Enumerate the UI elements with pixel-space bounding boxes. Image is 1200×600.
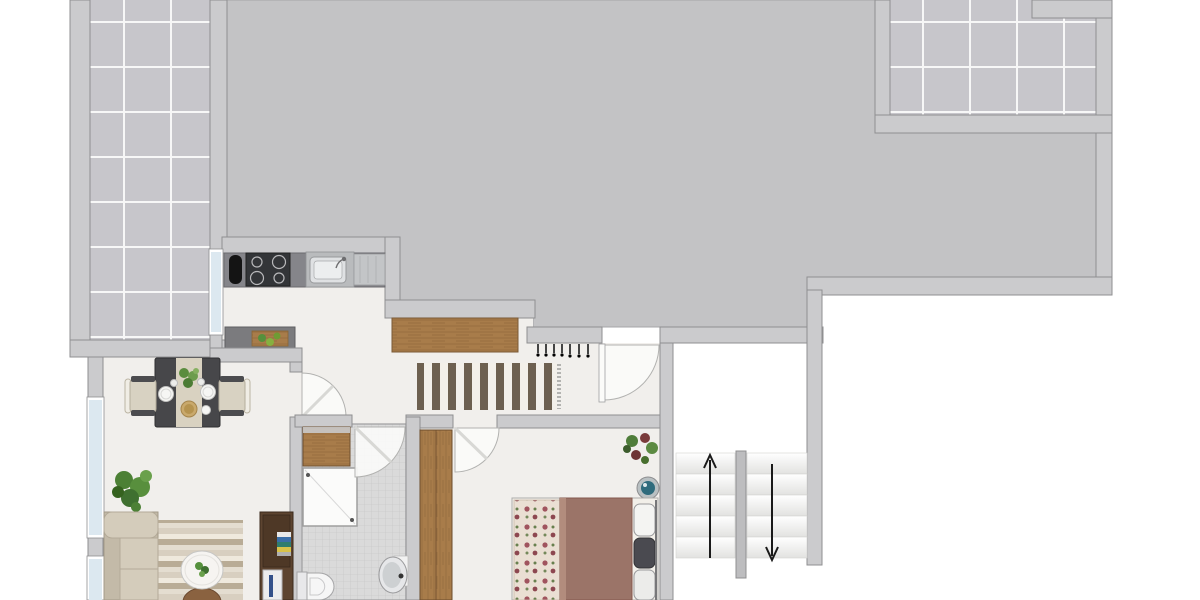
wall-segment [497, 415, 662, 428]
toilet [297, 572, 334, 600]
living-window-upper [87, 397, 104, 538]
sideboard [392, 318, 518, 352]
terrace-tiles [90, 0, 210, 340]
wall-segment [295, 415, 352, 427]
wall-segment [290, 362, 302, 372]
stair-divider [736, 451, 746, 578]
drainer [354, 254, 385, 285]
wardrobe [420, 430, 452, 600]
wall-segment [527, 327, 602, 343]
decor-bowl [637, 477, 659, 499]
prep-counter [225, 327, 295, 350]
tray [229, 255, 242, 284]
wall-segment [660, 343, 673, 600]
wall-segment [210, 348, 302, 362]
pillows [634, 504, 655, 600]
wall-segment [88, 537, 103, 557]
stove [246, 253, 290, 286]
wall-segment [660, 327, 823, 343]
wall-segment [1096, 18, 1112, 295]
shower [303, 468, 357, 526]
bookshelf [260, 512, 293, 600]
kitchen-window [209, 249, 223, 335]
wall-segment [1032, 0, 1112, 18]
duvet [560, 498, 632, 600]
floral-blanket [514, 500, 560, 600]
washbasin [379, 556, 408, 593]
coffee-table [181, 551, 223, 600]
wall-segment [222, 237, 400, 253]
living-window-lower [87, 556, 104, 600]
floor-plan [0, 0, 1200, 600]
apple [274, 333, 281, 340]
dining-table [155, 358, 220, 427]
apple [266, 338, 274, 346]
tv-panel [263, 570, 282, 600]
sink [306, 252, 354, 287]
wall-segment [875, 115, 1112, 133]
bed [512, 498, 658, 600]
stairs-up-flight [676, 453, 735, 558]
wall-segment [807, 290, 822, 565]
wall-segment [385, 300, 535, 318]
wall-segment [210, 0, 227, 250]
floor-plan-page [0, 0, 1200, 600]
wall-segment [70, 0, 90, 345]
stairs-down-flight [747, 453, 807, 560]
hallway-rug [417, 363, 557, 410]
wall-segment [807, 277, 1112, 295]
wall-segment [875, 0, 890, 115]
wall-segment [88, 357, 103, 398]
apple [258, 334, 266, 342]
bathroom-cabinet [303, 427, 350, 466]
books [277, 532, 291, 556]
dining-chair-right [219, 376, 250, 416]
dining-chair-left [125, 376, 156, 416]
sofa [104, 512, 158, 600]
